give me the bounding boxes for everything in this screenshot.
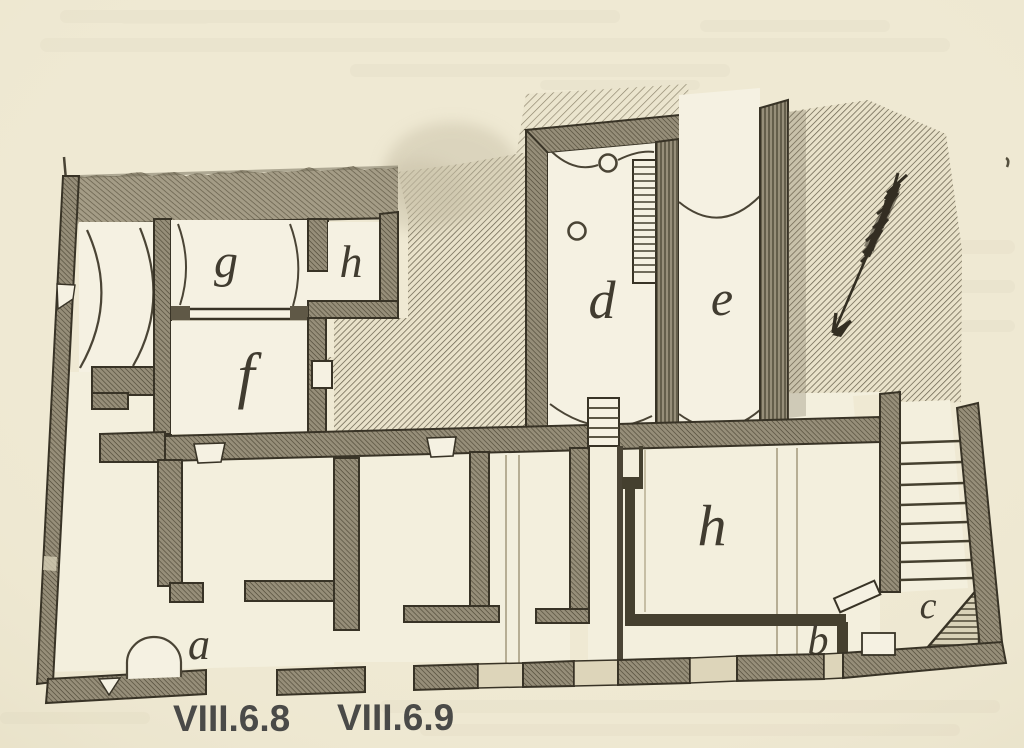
svg-text:VIII.6.8: VIII.6.8	[173, 698, 290, 739]
svg-text:h: h	[340, 236, 363, 287]
svg-text:e: e	[711, 270, 733, 326]
svg-text:d: d	[589, 270, 617, 330]
svg-text:c: c	[920, 585, 937, 627]
svg-text:VIII.6.9: VIII.6.9	[337, 697, 454, 738]
svg-text:a: a	[188, 620, 210, 669]
svg-text:h: h	[698, 493, 727, 558]
svg-text:g: g	[214, 235, 238, 288]
